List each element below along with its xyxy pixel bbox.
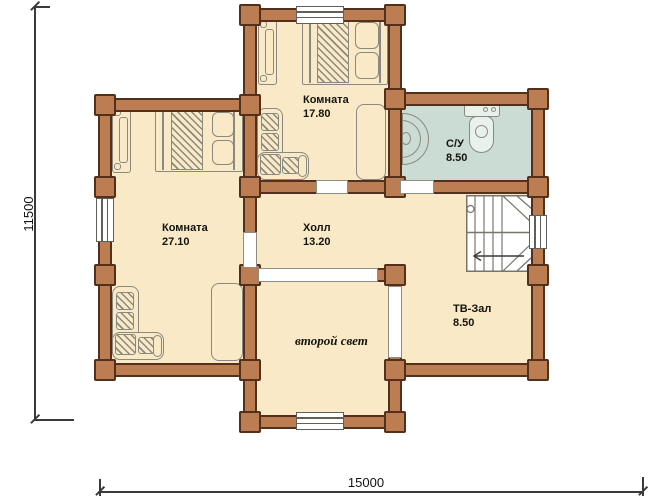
- floor-second-light: [255, 280, 388, 417]
- log-joint: [239, 176, 261, 198]
- staircase-icon: [466, 195, 533, 272]
- log-joint: [94, 176, 116, 198]
- log-joint: [384, 264, 406, 286]
- window-icon: [296, 6, 344, 24]
- log-joint: [384, 411, 406, 433]
- log-joint: [384, 88, 406, 110]
- room-label-bedroom-top: Комната 17.80: [303, 93, 349, 121]
- wall: [388, 363, 545, 377]
- cabinet-icon: [356, 104, 386, 180]
- log-joint: [239, 4, 261, 26]
- door-opening: [400, 180, 434, 194]
- window-icon: [296, 412, 344, 430]
- dimension-tick: [642, 477, 644, 496]
- corner-sofa-icon: [112, 286, 164, 362]
- log-joint: [94, 264, 116, 286]
- room-label-bedroom-left: Комната 27.10: [162, 221, 208, 249]
- log-joint: [527, 176, 549, 198]
- corner-sofa-icon: [257, 108, 309, 180]
- floor-plan: Комната 17.80 Комната 27.10 Холл 13.20 С…: [0, 0, 663, 502]
- door-opening: [316, 180, 348, 194]
- log-joint: [239, 94, 261, 116]
- room-area: 8.50: [453, 316, 491, 330]
- void-opening: [258, 268, 378, 282]
- log-joint: [527, 88, 549, 110]
- room-name: Холл: [303, 221, 331, 235]
- wall: [98, 363, 257, 377]
- double-bed-icon: [155, 106, 243, 172]
- dimension-line-horizontal: [100, 491, 643, 493]
- dimension-value-vertical: 11500: [22, 184, 36, 244]
- door-opening: [243, 232, 257, 268]
- window-icon: [96, 198, 114, 242]
- room-name: С/У: [446, 137, 467, 151]
- wardrobe-icon: [112, 107, 131, 173]
- room-name: Комната: [303, 93, 349, 107]
- wall: [388, 92, 545, 106]
- wall: [98, 98, 257, 112]
- cabinet-icon: [211, 283, 243, 361]
- log-joint: [94, 359, 116, 381]
- room-name: ТВ-Зал: [453, 302, 491, 316]
- void-opening: [388, 286, 402, 358]
- room-area: 27.10: [162, 235, 208, 249]
- room-label-bathroom: С/У 8.50: [446, 137, 467, 165]
- log-joint: [239, 359, 261, 381]
- room-area: 13.20: [303, 235, 331, 249]
- wardrobe-icon: [258, 19, 277, 85]
- log-joint: [94, 94, 116, 116]
- log-joint: [384, 4, 406, 26]
- window-icon: [529, 215, 547, 249]
- log-joint: [384, 359, 406, 381]
- room-name: Комната: [162, 221, 208, 235]
- dimension-value-horizontal: 15000: [336, 476, 396, 490]
- double-bed-icon: [302, 17, 388, 85]
- toilet-icon: [463, 102, 501, 154]
- room-label-second-light: второй свет: [295, 334, 368, 348]
- room-area: 17.80: [303, 107, 349, 121]
- dimension-tick: [34, 419, 74, 421]
- room-area: 8.50: [446, 151, 467, 165]
- log-joint: [527, 264, 549, 286]
- room-label-tv-hall: ТВ-Зал 8.50: [453, 302, 491, 330]
- faucet-icon: [401, 132, 411, 145]
- room-label-hall: Холл 13.20: [303, 221, 331, 249]
- log-joint: [527, 359, 549, 381]
- dimension-tick: [34, 6, 50, 8]
- log-joint: [239, 411, 261, 433]
